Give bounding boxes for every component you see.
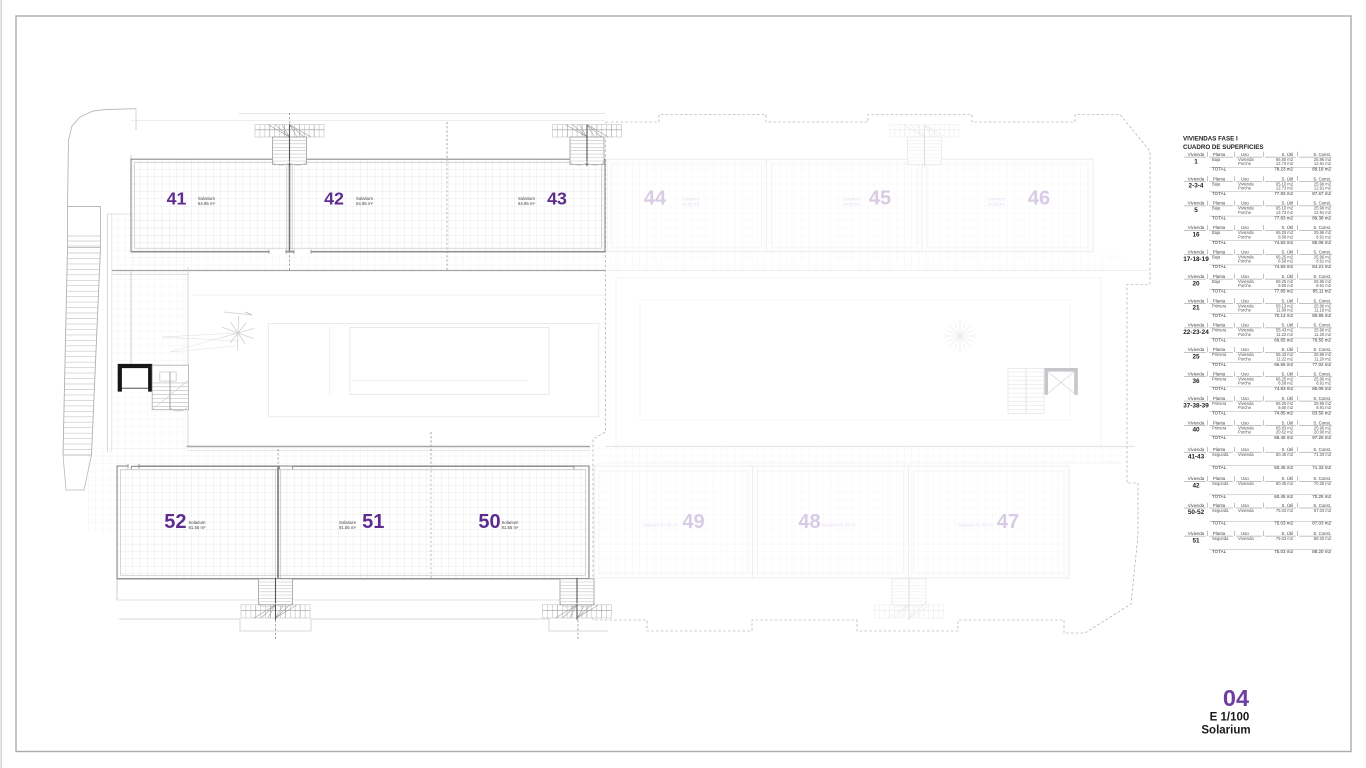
svg-text:Baja: Baja [1212,279,1221,284]
svg-text:36: 36 [1192,378,1200,385]
svg-text:TOTAL: TOTAL [1212,240,1227,245]
svg-text:Vivienda: Vivienda [1188,201,1205,206]
svg-text:75.03 m2: 75.03 m2 [1274,549,1293,554]
svg-text:12.73 m2: 12.73 m2 [1276,186,1294,191]
svg-text:71.33 m2: 71.33 m2 [1312,465,1331,470]
svg-text:Primera: Primera [1212,328,1227,333]
svg-text:47: 47 [997,511,1019,533]
svg-text:60.45 m2: 60.45 m2 [1276,452,1294,457]
svg-text:42: 42 [324,188,344,208]
svg-text:66.65 m2: 66.65 m2 [1274,337,1293,342]
svg-text:87.03 m2: 87.03 m2 [1312,521,1331,526]
svg-text:Solarium: Solarium [1201,725,1250,737]
svg-text:12.91 m2: 12.91 m2 [1314,186,1332,191]
svg-text:Vivienda: Vivienda [1188,372,1205,377]
svg-text:Porche: Porche [1238,381,1252,386]
svg-text:88.20 m2: 88.20 m2 [1314,536,1332,541]
svg-text:77.83 m2: 77.83 m2 [1274,191,1293,196]
svg-text:Primera: Primera [1212,377,1227,382]
svg-text:40: 40 [1192,427,1200,434]
svg-text:80.95 m2: 80.95 m2 [1312,313,1331,318]
svg-text:89.38 m2: 89.38 m2 [1312,215,1331,220]
svg-text:Porche: Porche [1238,332,1252,337]
svg-text:85.09 m2: 85.09 m2 [1312,386,1331,391]
svg-text:Porche: Porche [1238,210,1252,215]
svg-text:12.73 m2: 12.73 m2 [1276,210,1294,215]
svg-text:86.45 m2: 86.45 m2 [1274,435,1293,440]
svg-text:45: 45 [869,188,891,210]
svg-text:Porche: Porche [1238,186,1252,191]
svg-text:77.02 m2: 77.02 m2 [1312,362,1331,367]
svg-text:TOTAL: TOTAL [1212,313,1227,318]
svg-text:11.18 m2: 11.18 m2 [1314,308,1331,313]
svg-text:91.55 m²: 91.55 m² [189,525,207,530]
svg-text:51: 51 [1192,537,1200,544]
svg-text:Primera: Primera [1212,352,1227,357]
svg-text:2-3-4: 2-3-4 [1189,183,1204,190]
svg-text:Porche: Porche [1238,405,1252,410]
svg-text:Baja: Baja [1212,181,1221,186]
svg-text:85.08 m2: 85.08 m2 [1312,240,1331,245]
svg-text:75.03 m2: 75.03 m2 [1274,521,1293,526]
svg-text:70.25 m2: 70.25 m2 [1314,481,1332,486]
svg-text:91.55 m²: 91.55 m² [339,525,357,530]
svg-text:Baja: Baja [1212,230,1221,235]
svg-text:8.58 m2: 8.58 m2 [1278,259,1294,264]
svg-text:TOTAL: TOTAL [1212,494,1227,499]
svg-text:25: 25 [1192,354,1200,361]
svg-text:60.45 m2: 60.45 m2 [1274,494,1293,499]
svg-text:64.85 m²: 64.85 m² [682,201,700,206]
svg-text:12.73 m2: 12.73 m2 [1276,161,1294,166]
svg-text:VIVIENDAS FASE I: VIVIENDAS FASE I [1183,136,1238,143]
svg-text:85.11 m2: 85.11 m2 [1313,289,1332,294]
svg-text:64.85 m²: 64.85 m² [843,201,861,206]
svg-text:TOTAL: TOTAL [1212,411,1227,416]
svg-text:71.33 m2: 71.33 m2 [1314,452,1332,457]
svg-text:Segunda: Segunda [1212,452,1229,457]
svg-text:Solarium 91.55 m²: Solarium 91.55 m² [958,523,994,528]
svg-text:88.20 m2: 88.20 m2 [1312,549,1331,554]
svg-text:91.55 m²: 91.55 m² [502,525,520,530]
svg-text:12.91 m2: 12.91 m2 [1314,161,1332,166]
svg-text:8.91 m2: 8.91 m2 [1316,283,1332,288]
svg-text:TOTAL: TOTAL [1212,386,1227,391]
svg-text:44: 44 [644,188,667,210]
svg-text:5: 5 [1194,207,1198,214]
svg-text:TOTAL: TOTAL [1212,167,1227,172]
svg-text:11.20 m2: 11.20 m2 [1314,356,1331,361]
svg-text:Porche: Porche [1238,430,1252,435]
svg-text:74.83 m2: 74.83 m2 [1274,264,1293,269]
svg-text:42: 42 [1192,483,1200,490]
svg-text:8.91 m2: 8.91 m2 [1316,234,1332,239]
svg-text:Segunda: Segunda [1212,536,1229,541]
svg-text:60.45 m2: 60.45 m2 [1274,465,1293,470]
svg-text:TOTAL: TOTAL [1212,337,1227,342]
svg-text:Vivienda: Vivienda [1188,347,1205,352]
svg-text:87.03 m2: 87.03 m2 [1314,508,1332,513]
svg-text:Vivienda: Vivienda [1188,476,1205,481]
svg-text:8.60 m2: 8.60 m2 [1278,405,1294,410]
svg-text:Primera: Primera [1212,303,1227,308]
svg-text:TOTAL: TOTAL [1212,191,1227,196]
svg-text:Primera: Primera [1212,425,1227,430]
svg-text:TOTAL: TOTAL [1212,289,1227,294]
svg-text:49: 49 [682,511,704,533]
svg-text:Porche: Porche [1238,283,1252,288]
svg-text:Vivienda: Vivienda [1188,396,1205,401]
svg-text:TOTAL: TOTAL [1212,549,1227,554]
svg-text:8.91 m2: 8.91 m2 [1316,259,1332,264]
svg-text:Vivienda: Vivienda [1188,447,1205,452]
svg-text:89.18 m2: 89.18 m2 [1312,167,1331,172]
svg-text:74.83 m2: 74.83 m2 [1274,386,1293,391]
svg-text:97.25 m2: 97.25 m2 [1312,435,1331,440]
svg-text:8.60 m2: 8.60 m2 [1278,283,1294,288]
svg-text:8.91 m2: 8.91 m2 [1316,381,1332,386]
svg-text:41: 41 [167,188,187,208]
svg-text:16: 16 [1192,232,1200,239]
svg-text:Porche: Porche [1238,356,1252,361]
svg-text:8.58 m2: 8.58 m2 [1278,234,1294,239]
svg-text:20: 20 [1192,280,1200,287]
svg-text:Vivienda: Vivienda [1188,225,1205,230]
svg-text:CUADRO DE SUPERFICIES: CUADRO DE SUPERFICIES [1183,144,1263,151]
svg-text:51: 51 [362,511,384,533]
svg-text:Vivienda: Vivienda [1188,503,1205,508]
svg-text:64.85 m²: 64.85 m² [988,201,1006,206]
svg-text:20.90 m2: 20.90 m2 [1314,430,1332,435]
svg-text:Solarium 91.55 m²: Solarium 91.55 m² [643,523,679,528]
svg-text:Vivienda: Vivienda [1238,508,1254,513]
svg-text:84.21 m2: 84.21 m2 [1312,264,1331,269]
svg-text:Segunda: Segunda [1212,508,1229,513]
svg-text:22-23-24: 22-23-24 [1183,329,1209,336]
svg-text:1: 1 [1194,158,1198,165]
svg-text:87.67 m2: 87.67 m2 [1312,191,1331,196]
svg-text:Baja: Baja [1212,255,1221,260]
svg-text:52: 52 [164,511,186,533]
svg-text:74.83 m2: 74.83 m2 [1274,240,1293,245]
svg-text:TOTAL: TOTAL [1212,362,1227,367]
svg-text:Vivienda: Vivienda [1188,152,1205,157]
svg-text:66.65 m2: 66.65 m2 [1274,362,1293,367]
svg-text:TOTAL: TOTAL [1212,465,1227,470]
svg-text:Vivienda: Vivienda [1188,420,1205,425]
svg-text:20.62 m2: 20.62 m2 [1276,430,1294,435]
svg-text:Vivienda: Vivienda [1188,250,1205,255]
svg-text:78.23 m2: 78.23 m2 [1274,167,1293,172]
svg-text:TOTAL: TOTAL [1212,435,1227,440]
svg-text:46: 46 [1028,188,1050,210]
svg-text:Porche: Porche [1238,308,1252,313]
svg-text:11.99 m2: 11.99 m2 [1276,308,1293,313]
svg-text:TOTAL: TOTAL [1212,521,1227,526]
svg-text:11.22 m2: 11.22 m2 [1276,332,1293,337]
svg-text:04: 04 [1223,685,1249,711]
svg-text:Vivienda: Vivienda [1188,176,1205,181]
svg-text:Baja: Baja [1212,157,1221,162]
svg-text:Vivienda: Vivienda [1188,274,1205,279]
svg-text:21: 21 [1192,305,1200,312]
svg-text:50-52: 50-52 [1188,509,1205,516]
svg-text:75.03 m2: 75.03 m2 [1276,508,1294,513]
svg-text:Porche: Porche [1238,234,1252,239]
svg-text:64.85 m²: 64.85 m² [356,201,374,206]
svg-text:11.20 m2: 11.20 m2 [1314,332,1331,337]
svg-text:Solarium 91.55 m²: Solarium 91.55 m² [821,523,857,528]
svg-text:50: 50 [478,511,500,533]
svg-text:8.58 m2: 8.58 m2 [1278,381,1294,386]
svg-text:Vivienda: Vivienda [1188,531,1205,536]
svg-text:64.85 m²: 64.85 m² [198,201,216,206]
svg-text:48: 48 [798,511,820,533]
svg-text:Vivienda: Vivienda [1238,481,1254,486]
svg-text:74.85 m2: 74.85 m2 [1274,411,1293,416]
svg-text:70.25 m2: 70.25 m2 [1312,494,1331,499]
svg-text:41-43: 41-43 [1188,453,1205,460]
svg-text:83.56 m2: 83.56 m2 [1312,411,1331,416]
svg-text:76.55 m2: 76.55 m2 [1312,337,1331,342]
svg-text:Baja: Baja [1212,206,1221,211]
svg-text:Vivienda: Vivienda [1188,298,1205,303]
svg-text:43: 43 [547,188,567,208]
svg-text:12.91 m2: 12.91 m2 [1314,210,1332,215]
svg-text:Vivienda: Vivienda [1188,323,1205,328]
svg-text:77.85 m2: 77.85 m2 [1274,289,1293,294]
svg-text:TOTAL: TOTAL [1212,215,1227,220]
svg-text:Porche: Porche [1238,161,1252,166]
svg-text:Porche: Porche [1238,259,1252,264]
svg-text:75.03 m2: 75.03 m2 [1276,536,1294,541]
svg-text:77.83 m2: 77.83 m2 [1274,215,1293,220]
svg-text:Vivienda: Vivienda [1238,536,1254,541]
svg-text:37-38-39: 37-38-39 [1183,402,1209,409]
svg-text:70.13 m2: 70.13 m2 [1274,313,1293,318]
svg-text:Vivienda: Vivienda [1238,452,1254,457]
svg-text:E 1/100: E 1/100 [1210,712,1250,724]
svg-text:11.22 m2: 11.22 m2 [1276,356,1293,361]
svg-text:TOTAL: TOTAL [1212,264,1227,269]
svg-text:17-18-19: 17-18-19 [1183,256,1209,263]
svg-text:8.91 m2: 8.91 m2 [1316,405,1332,410]
svg-text:Segunda: Segunda [1212,481,1229,486]
svg-text:Primera: Primera [1212,401,1227,406]
svg-text:60.45 m2: 60.45 m2 [1276,481,1294,486]
svg-text:64.85 m²: 64.85 m² [518,201,536,206]
